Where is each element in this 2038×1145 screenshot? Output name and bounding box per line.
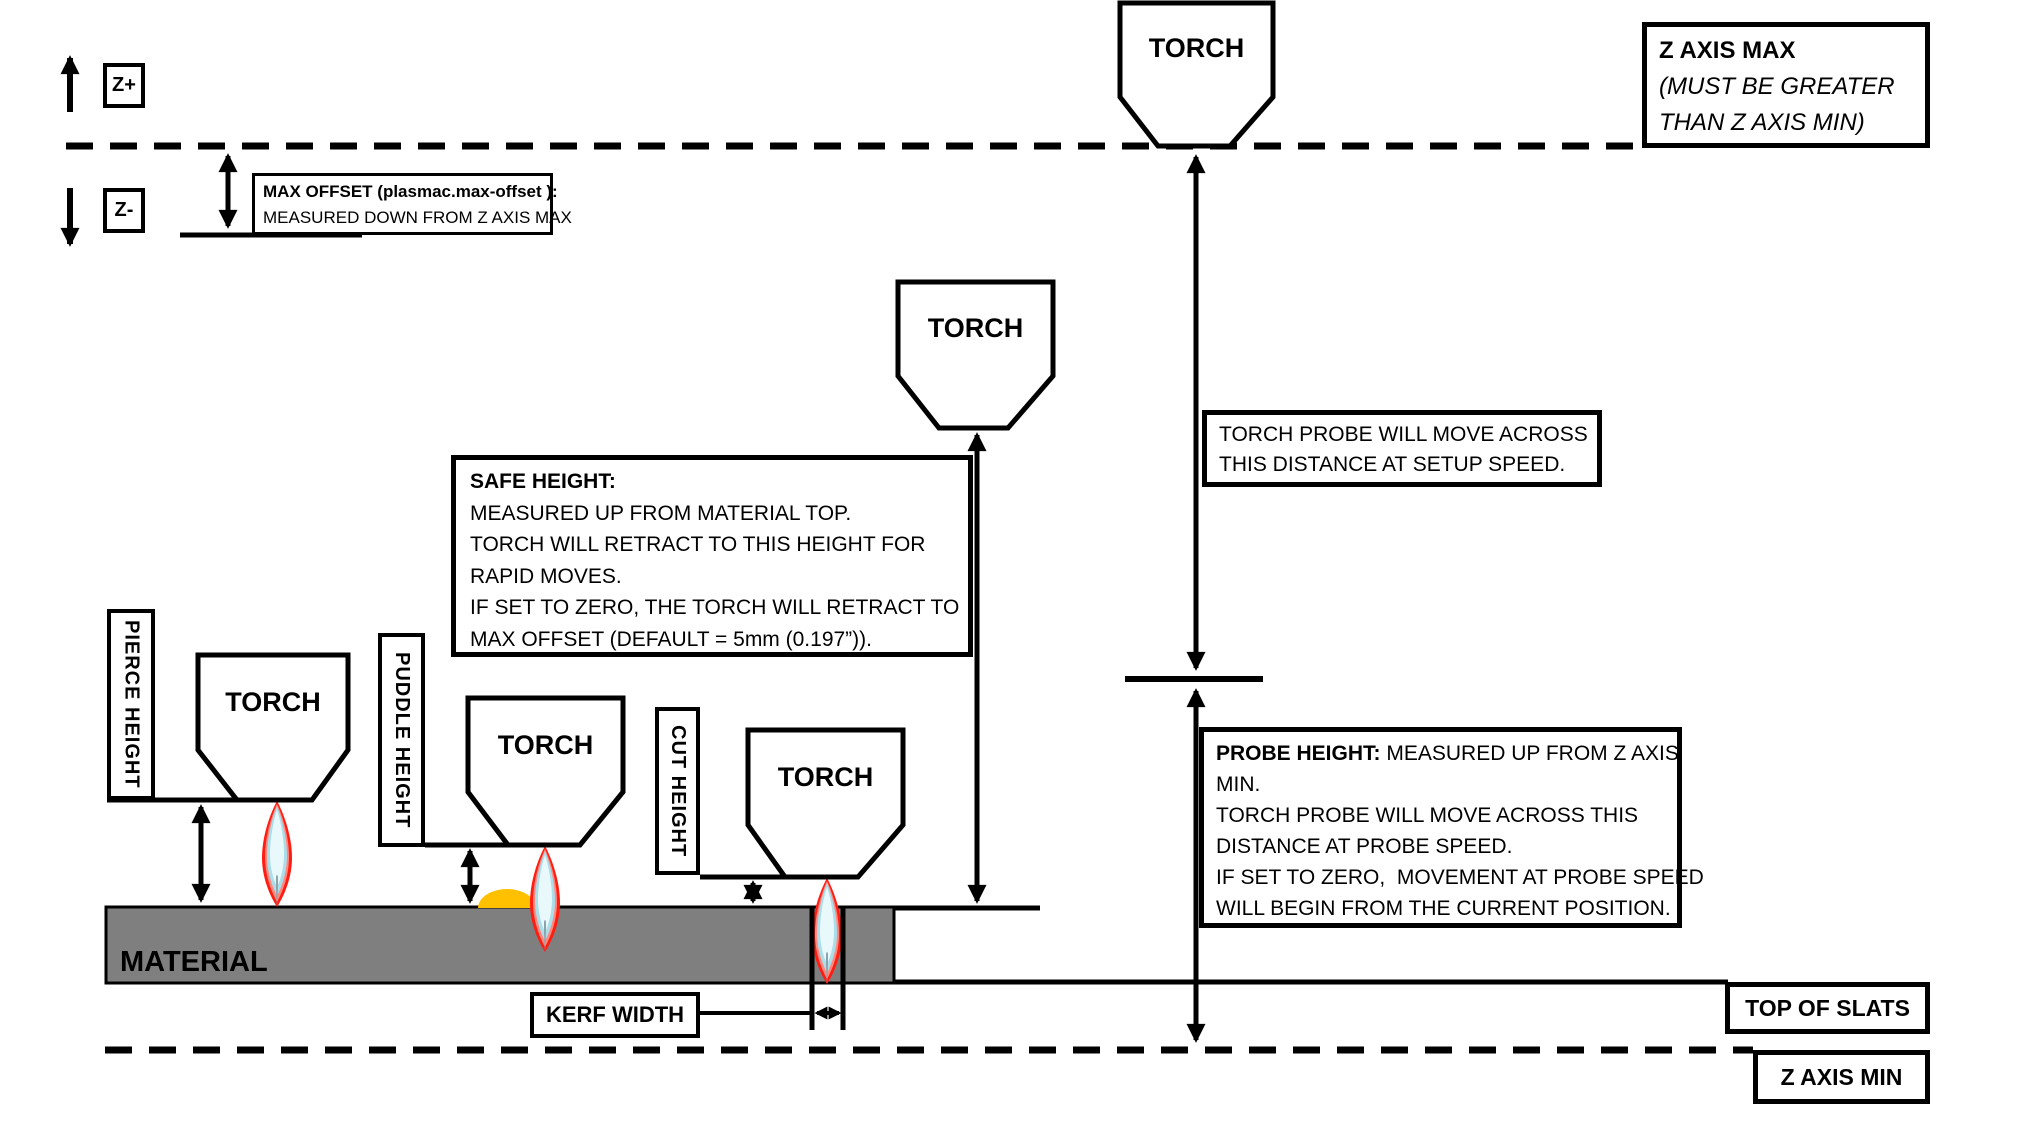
z-axis-max-title: Z AXIS MAX (1659, 33, 1913, 69)
probe-height-line: MIN. (1216, 769, 1665, 800)
probe-height-note: PROBE HEIGHT: MEASURED UP FROM Z AXIS MI… (1199, 727, 1682, 928)
puddle-height-label-box: PUDDLE HEIGHT (378, 633, 425, 847)
material-label-text: MATERIAL (120, 946, 268, 978)
diagram-canvas (0, 0, 2038, 1145)
top-of-slats-label: TOP OF SLATS (1745, 995, 1910, 1022)
puddle-height-label: PUDDLE HEIGHT (390, 652, 413, 828)
setup-note-line1: TORCH PROBE WILL MOVE ACROSS (1219, 420, 1585, 450)
probe-height-line: WILL BEGIN FROM THE CURRENT POSITION. (1216, 893, 1665, 924)
safe-height-line: TORCH WILL RETRACT TO THIS HEIGHT FOR (470, 529, 954, 561)
torch-safe-label: TORCH (898, 308, 1053, 348)
z-plus-label: Z+ (112, 74, 136, 97)
z-axis-min-box: Z AXIS MIN (1753, 1050, 1930, 1104)
torch-body-safe (898, 282, 1053, 428)
safe-height-title: SAFE HEIGHT: (470, 466, 954, 498)
plasma-height-diagram: Z+ Z- MAX OFFSET (plasmac.max-offset ): … (0, 0, 2038, 1145)
torch-label-text: TORCH (498, 730, 594, 761)
max-offset-line2: MEASURED DOWN FROM Z AXIS MAX (263, 205, 542, 231)
torch-pierce-label: TORCH (198, 682, 348, 722)
probe-height-after-title: MEASURED UP FROM Z AXIS (1381, 742, 1679, 765)
torch-label-text: TORCH (928, 313, 1024, 344)
pierce-flame (262, 801, 292, 907)
torch-puddle-label: TORCH (468, 725, 623, 765)
setup-speed-note: TORCH PROBE WILL MOVE ACROSS THIS DISTAN… (1202, 410, 1602, 487)
probe-height-line: IF SET TO ZERO, MOVEMENT AT PROBE SPEED (1216, 862, 1665, 893)
top-of-slats-box: TOP OF SLATS (1725, 982, 1930, 1034)
torch-cut-label: TORCH (748, 757, 903, 797)
material-label: MATERIAL (120, 946, 268, 979)
probe-height-line: TORCH PROBE WILL MOVE ACROSS THIS (1216, 800, 1665, 831)
safe-height-line: IF SET TO ZERO, THE TORCH WILL RETRACT T… (470, 592, 954, 624)
z-axis-max-note-line2: THAN Z AXIS MIN) (1659, 105, 1913, 141)
torch-body-pierce (198, 655, 348, 800)
torch-top-label: TORCH (1120, 28, 1273, 68)
probe-height-title: PROBE HEIGHT: (1216, 742, 1381, 765)
z-axis-min-label: Z AXIS MIN (1781, 1064, 1903, 1091)
max-offset-title: MAX OFFSET (plasmac.max-offset ): (263, 179, 542, 205)
cut-height-label: CUT HEIGHT (666, 725, 689, 857)
pierce-height-label: PIERCE HEIGHT (120, 620, 143, 789)
torch-body-puddle (468, 698, 623, 845)
z-minus-label: Z- (115, 199, 134, 222)
torch-body-top (1120, 3, 1273, 146)
max-offset-note: MAX OFFSET (plasmac.max-offset ): MEASUR… (252, 173, 553, 235)
safe-height-line: MEASURED UP FROM MATERIAL TOP. (470, 498, 954, 530)
setup-note-line2: THIS DISTANCE AT SETUP SPEED. (1219, 450, 1585, 480)
z-minus-label-box: Z- (103, 188, 145, 233)
z-axis-max-note: Z AXIS MAX (MUST BE GREATER THAN Z AXIS … (1642, 22, 1930, 148)
safe-height-line: MAX OFFSET (DEFAULT = 5mm (0.197”)). (470, 624, 954, 656)
z-plus-label-box: Z+ (103, 63, 145, 108)
cut-height-label-box: CUT HEIGHT (655, 707, 700, 875)
kerf-width-label: KERF WIDTH (546, 1002, 684, 1028)
z-axis-max-note-line1: (MUST BE GREATER (1659, 69, 1913, 105)
torch-label-text: TORCH (778, 762, 874, 793)
safe-height-note: SAFE HEIGHT: MEASURED UP FROM MATERIAL T… (451, 455, 973, 657)
torch-label-text: TORCH (225, 687, 321, 718)
kerf-width-box: KERF WIDTH (530, 992, 700, 1038)
probe-height-line: DISTANCE AT PROBE SPEED. (1216, 831, 1665, 862)
pierce-height-label-box: PIERCE HEIGHT (107, 609, 155, 800)
safe-height-line: RAPID MOVES. (470, 561, 954, 593)
torch-body-cut (748, 730, 903, 877)
torch-label-text: TORCH (1149, 33, 1245, 64)
puddle-blob (478, 889, 536, 908)
